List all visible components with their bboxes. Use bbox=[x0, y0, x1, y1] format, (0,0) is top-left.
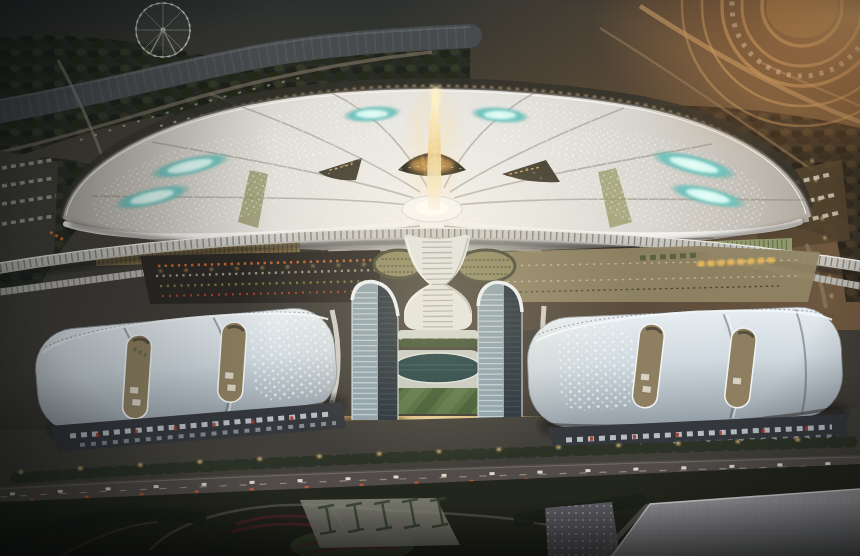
aerial-rendering bbox=[0, 0, 860, 556]
rendering-canvas bbox=[0, 0, 860, 556]
vignette bbox=[0, 0, 860, 556]
